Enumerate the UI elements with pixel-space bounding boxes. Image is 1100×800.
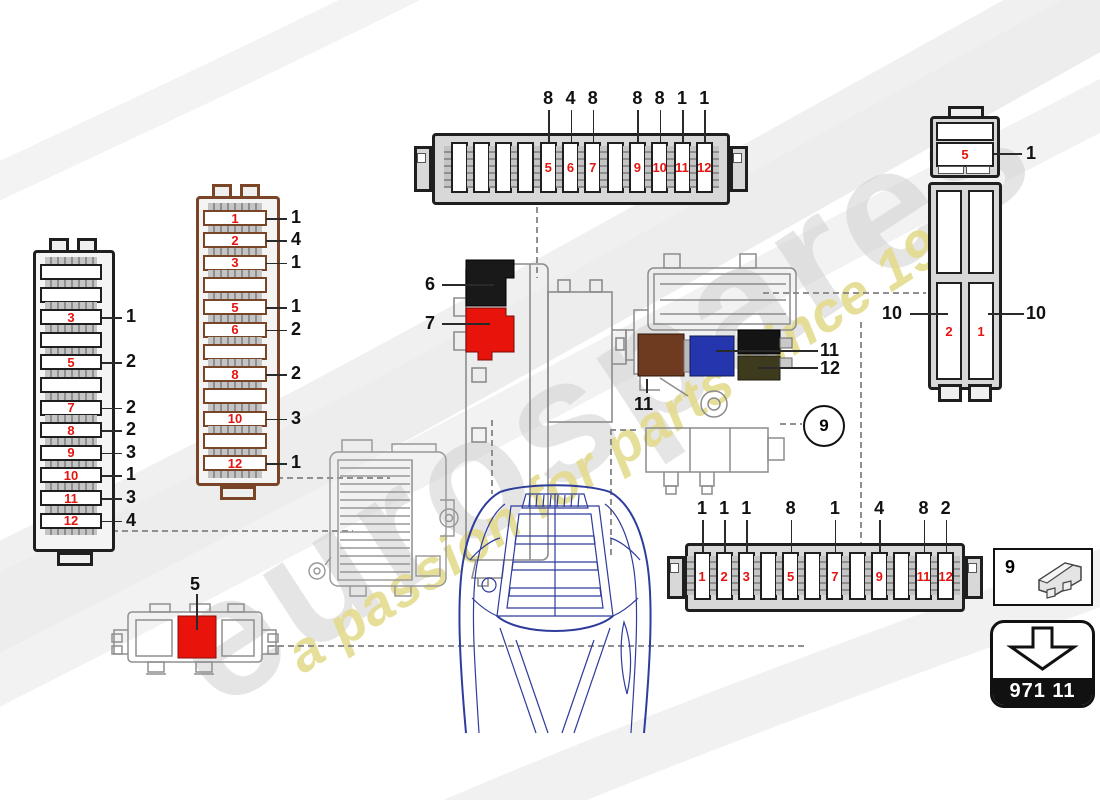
leader-line (266, 330, 287, 332)
blue-fuse (690, 336, 734, 376)
legend-box: 9 (993, 548, 1093, 606)
blade-fuse-icon (1025, 552, 1089, 602)
callout-number[interactable]: 3 (126, 442, 136, 462)
leader-line (266, 263, 287, 265)
fuse-slot (607, 142, 624, 193)
fuse-number: 3 (67, 310, 74, 325)
fuse-number: 9 (634, 160, 641, 175)
leader-line (266, 463, 287, 465)
fuse-slot: 2 (203, 232, 267, 248)
fuse-number: 12 (938, 569, 952, 584)
fuse-number: 11 (64, 491, 78, 506)
callout-number[interactable]: 1 (291, 207, 301, 227)
callout-number[interactable]: 1 (741, 498, 751, 518)
legend-ref-number: 9 (1005, 557, 1015, 578)
fuse-slot: 5 (40, 354, 102, 370)
fuse-number: 7 (67, 400, 74, 415)
connector-strip (953, 556, 960, 595)
fuse-slot: 3 (203, 255, 267, 271)
leader-line (266, 307, 287, 309)
fuse-slot: 9 (629, 142, 646, 193)
fuse-number: 12 (64, 513, 78, 528)
fuse-slot (893, 552, 910, 600)
dashed-connector (860, 322, 862, 548)
end-cap-detail (968, 563, 977, 573)
fuse-slot: 8 (203, 366, 267, 382)
fuse-slot: 11 (40, 490, 102, 506)
fuse-slot: 5 (782, 552, 799, 600)
callout-number[interactable]: 7 (425, 313, 435, 333)
callout-number[interactable]: 2 (291, 319, 301, 339)
fuse-number: 1 (977, 324, 984, 339)
fuse-number: 11 (675, 160, 689, 175)
leader-line (704, 110, 706, 142)
fuse-slot: 2 (716, 552, 733, 600)
fuse-number: 6 (567, 160, 574, 175)
leader-line (724, 520, 726, 552)
fuse-slot (936, 122, 994, 141)
black-fuse (466, 260, 514, 306)
callout-number[interactable]: 2 (126, 397, 136, 417)
fuse-slot: 8 (40, 422, 102, 438)
callout-number[interactable]: 8 (918, 498, 928, 518)
callout-number[interactable]: 1 (677, 88, 687, 108)
fuse-slot (495, 142, 512, 193)
fuse-slot (517, 142, 534, 193)
fuse-slot: 9 (40, 445, 102, 461)
fuse-number: 7 (831, 569, 838, 584)
leader-line (946, 520, 948, 552)
fuse-slot (968, 190, 994, 274)
brown_vertical-panel-tab (212, 184, 232, 199)
fuse-number: 3 (231, 255, 238, 270)
fuse-number: 8 (231, 367, 238, 382)
callout-number[interactable]: 8 (632, 88, 642, 108)
fuse-slot (203, 277, 267, 293)
fuse-number: 8 (67, 423, 74, 438)
right-panel-foot (968, 384, 992, 402)
callout-number[interactable]: 2 (291, 363, 301, 383)
fuse-number: 5 (67, 355, 74, 370)
fuse-slot (203, 344, 267, 360)
fuse-number: 9 (67, 445, 74, 460)
callout-number[interactable]: 4 (291, 229, 301, 249)
fuse-slot: 7 (826, 552, 843, 600)
fuse-number: 5 (231, 300, 238, 315)
callout-number[interactable]: 3 (291, 408, 301, 428)
relay-carrier-assembly-drawing (620, 250, 840, 495)
fuse-slot: 12 (203, 455, 267, 471)
callout-number[interactable]: 1 (719, 498, 729, 518)
fuse-number: 5 (545, 160, 552, 175)
fuse-slot: 3 (40, 309, 102, 325)
leader-line (835, 520, 837, 552)
brown_vertical-panel-foot (220, 486, 256, 500)
leader-line (102, 453, 122, 455)
leader-line (682, 110, 684, 142)
part-code: 971 11 (993, 678, 1092, 705)
fuse-number: 5 (787, 569, 794, 584)
part-number-box: 971 11 (990, 620, 1095, 708)
leader-line (571, 110, 573, 142)
end-cap-detail (417, 153, 426, 163)
leader-line (266, 218, 287, 220)
callout-number[interactable]: 1 (830, 498, 840, 518)
fuse-slot: 3 (738, 552, 755, 600)
fuse-slot (451, 142, 468, 193)
fuse-number: 1 (698, 569, 705, 584)
fuse-slot: 5 (203, 299, 267, 315)
fuse-number: 12 (697, 160, 711, 175)
leader-line (548, 110, 550, 142)
brown-fuse (638, 334, 684, 376)
fuse-slot (40, 264, 102, 280)
fuse-number: 6 (231, 322, 238, 337)
leader-line (746, 520, 748, 552)
leader-line (102, 408, 122, 410)
leader-line (593, 110, 595, 142)
callout-number[interactable]: 4 (126, 510, 136, 530)
callout-number[interactable]: 1 (699, 88, 709, 108)
left_vertical-panel-tab (77, 238, 97, 253)
small-fuse-holder-drawing (105, 595, 290, 680)
callout-number[interactable]: 1 (291, 452, 301, 472)
fuse-slot (849, 552, 866, 600)
leader-line (102, 498, 122, 500)
fuse-slot (40, 377, 102, 393)
fuse-number: 10 (64, 468, 78, 483)
leader-line (102, 317, 122, 319)
fuse-slot (203, 388, 267, 404)
callout-number[interactable]: 8 (786, 498, 796, 518)
leader-line (637, 110, 639, 142)
fuse-slot: 11 (915, 552, 932, 600)
fuse-slot: 5 (936, 142, 994, 167)
fuse-number: 5 (961, 147, 968, 162)
fuse-slot: 11 (674, 142, 691, 193)
down-arrow-icon (996, 625, 1089, 675)
callout-number[interactable]: 4 (565, 88, 575, 108)
leader-line (266, 240, 287, 242)
leader-line (266, 419, 287, 421)
callout-number[interactable]: 8 (655, 88, 665, 108)
leader-line (702, 520, 704, 552)
fuse-number: 2 (945, 324, 952, 339)
leader-line (102, 475, 122, 477)
connector-strip (45, 528, 97, 535)
leader-line (266, 374, 287, 376)
fuse-number: 2 (721, 569, 728, 584)
fuse-number: 3 (743, 569, 750, 584)
callout-number[interactable]: 2 (126, 419, 136, 439)
callout-number[interactable]: 4 (874, 498, 884, 518)
fuse-number: 11 (917, 569, 931, 584)
fuse-number: 7 (589, 160, 596, 175)
fuse-slot: 2 (936, 282, 962, 380)
end-cap-detail (670, 563, 679, 573)
callout-number[interactable]: 10 (1026, 303, 1046, 323)
fuse-slot: 7 (584, 142, 601, 193)
callout-number[interactable]: 5 (190, 574, 200, 594)
callout-number[interactable]: 1 (291, 252, 301, 272)
callout-number[interactable]: 2 (126, 351, 136, 371)
red-fuse (466, 308, 514, 360)
fusebox-parts-diagram: eurospares a passion for parts since 198… (0, 0, 1100, 800)
callout-number[interactable]: 1 (126, 306, 136, 326)
brown_vertical-panel-tab (240, 184, 260, 199)
fuse-slot (473, 142, 490, 193)
fuse-slot: 9 (871, 552, 888, 600)
fuse-slot: 6 (203, 322, 267, 338)
fuse-number: 10 (652, 160, 666, 175)
leader-line (102, 430, 122, 432)
callout-number[interactable]: 6 (425, 274, 435, 294)
callout-number[interactable]: 8 (588, 88, 598, 108)
callout-number[interactable]: 1 (1026, 143, 1036, 163)
callout-number[interactable]: 8 (543, 88, 553, 108)
fuse-slot (804, 552, 821, 600)
fuse-slot: 12 (937, 552, 954, 600)
leader-line (102, 362, 122, 364)
callout-number[interactable]: 2 (941, 498, 951, 518)
callout-number[interactable]: 1 (126, 464, 136, 484)
leader-line (791, 520, 793, 552)
right-panel-foot (938, 384, 962, 402)
fuse-slot: 10 (203, 411, 267, 427)
fuse-number: 9 (876, 569, 883, 584)
fuse-slot: 6 (562, 142, 579, 193)
fuse-slot (203, 433, 267, 449)
circled-callout-9[interactable]: 9 (803, 405, 845, 447)
leader-line (102, 521, 122, 523)
fuse-slot: 10 (40, 467, 102, 483)
fuse-slot: 12 (696, 142, 713, 193)
callout-number[interactable]: 10 (882, 303, 902, 323)
fuse-slot (40, 287, 102, 303)
leader-line (660, 110, 662, 142)
callout-number[interactable]: 12 (820, 358, 840, 378)
fuse-slot: 12 (40, 513, 102, 529)
left_vertical-panel-foot (57, 552, 93, 566)
callout-number[interactable]: 11 (634, 394, 653, 414)
connector-strip (712, 146, 719, 188)
end-cap-detail (733, 153, 742, 163)
callout-number[interactable]: 1 (291, 296, 301, 316)
fuse-slot: 7 (40, 400, 102, 416)
left_vertical-panel-tab (49, 238, 69, 253)
fuse-number: 12 (228, 456, 242, 471)
callout-number[interactable]: 11 (820, 340, 839, 360)
fuse-number: 2 (231, 233, 238, 248)
fuse-slot (936, 190, 962, 274)
fuse-slot: 1 (694, 552, 711, 600)
fuse-slot (40, 332, 102, 348)
connector-strip (208, 471, 262, 478)
fuse-slot: 10 (651, 142, 668, 193)
fuse-slot: 5 (540, 142, 557, 193)
leader-line (924, 520, 926, 552)
fuse-number: 1 (231, 211, 238, 226)
car-outline-drawing (440, 475, 670, 740)
leader-line (879, 520, 881, 552)
fuse-number: 10 (228, 411, 242, 426)
fuse-slot: 1 (203, 210, 267, 226)
fuse-slot (760, 552, 777, 600)
fuse-slot: 1 (968, 282, 994, 380)
callout-number[interactable]: 1 (697, 498, 707, 518)
callout-number[interactable]: 3 (126, 487, 136, 507)
